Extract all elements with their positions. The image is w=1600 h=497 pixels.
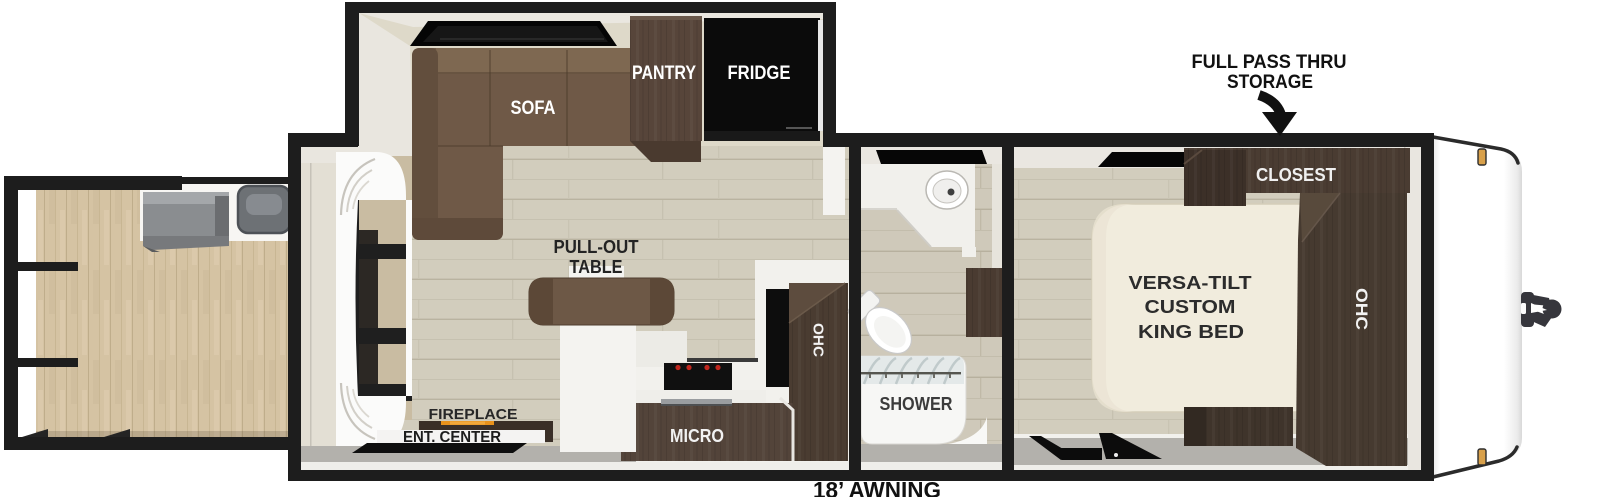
svg-text:KING BED: KING BED xyxy=(1138,322,1244,342)
svg-text:OHC: OHC xyxy=(810,323,827,357)
svg-text:TABLE: TABLE xyxy=(570,257,623,277)
svg-text:PANTRY: PANTRY xyxy=(632,63,696,84)
svg-text:MICRO: MICRO xyxy=(670,426,724,446)
svg-text:FRIDGE: FRIDGE xyxy=(728,63,791,84)
svg-text:FIREPLACE: FIREPLACE xyxy=(429,406,518,423)
svg-text:PULL-OUT: PULL-OUT xyxy=(554,237,639,257)
svg-text:FULL PASS THRU: FULL PASS THRU xyxy=(1192,51,1347,73)
svg-text:STORAGE: STORAGE xyxy=(1227,71,1313,93)
svg-text:ENT. CENTER: ENT. CENTER xyxy=(403,429,501,446)
svg-text:18’ AWNING: 18’ AWNING xyxy=(813,477,941,497)
svg-text:CLOSEST: CLOSEST xyxy=(1256,165,1336,185)
svg-text:VERSA-TILT: VERSA-TILT xyxy=(1129,273,1252,293)
svg-text:SOFA: SOFA xyxy=(511,98,556,119)
svg-text:OHC: OHC xyxy=(1352,288,1371,330)
svg-text:CUSTOM: CUSTOM xyxy=(1145,297,1236,317)
svg-text:SHOWER: SHOWER xyxy=(880,394,953,414)
